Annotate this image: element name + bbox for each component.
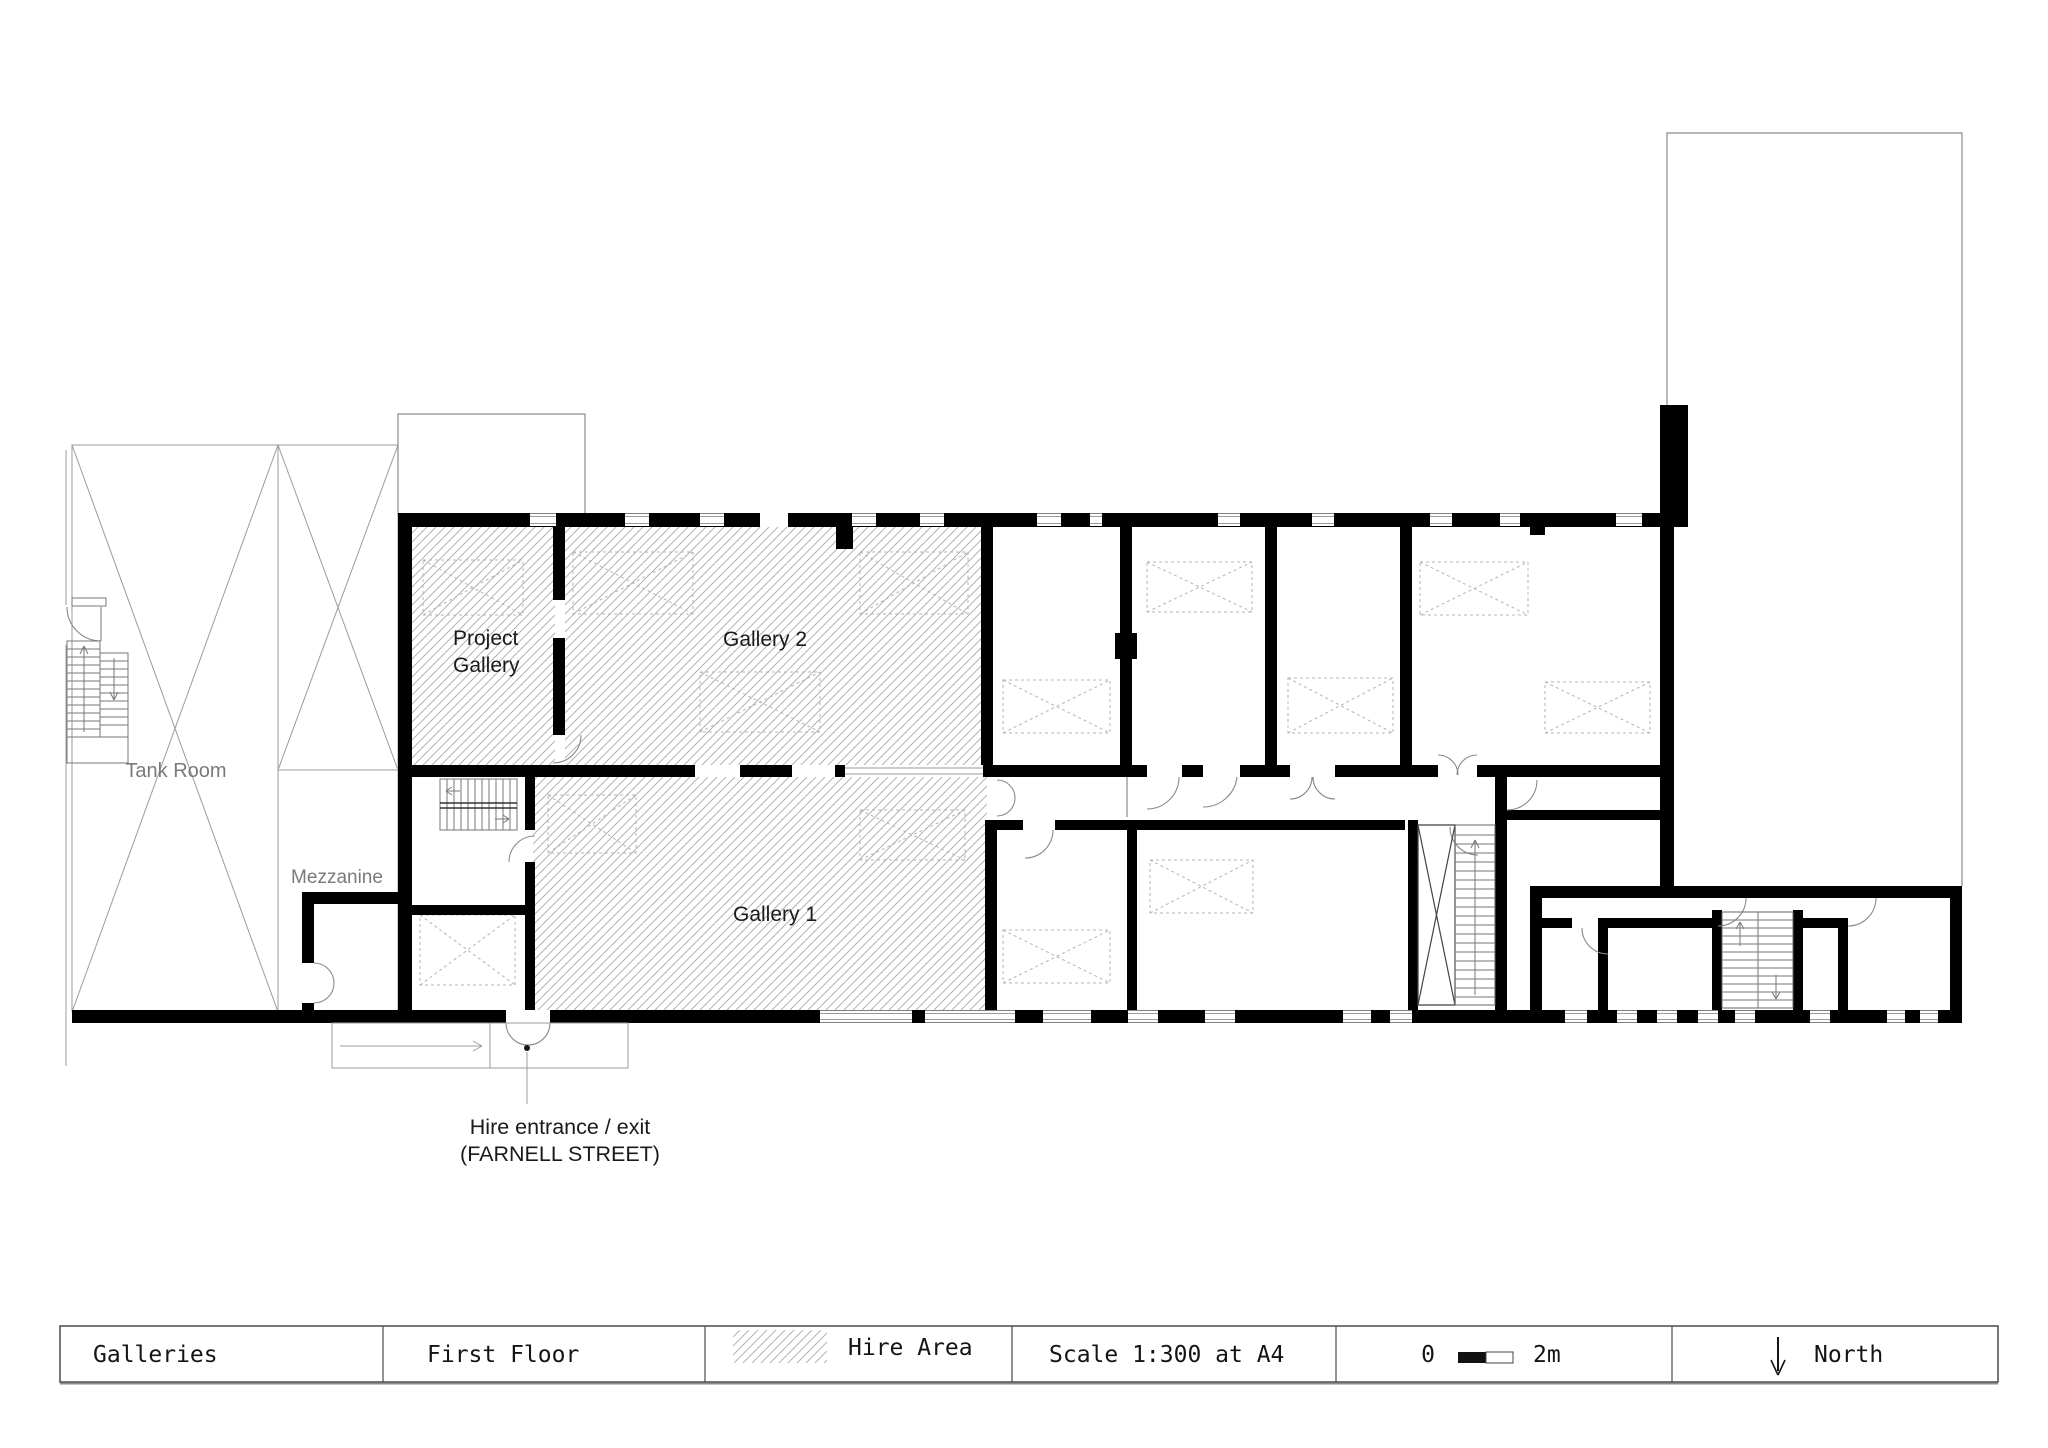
internal-glazing xyxy=(845,765,983,777)
entrance-annotation-line2: (FARNELL STREET) xyxy=(460,1142,660,1166)
mezzanine-label: Mezzanine xyxy=(291,867,383,888)
legend-hire-area-label: Hire Area xyxy=(848,1335,973,1361)
scale-bar-zero: 0 xyxy=(1421,1342,1435,1368)
tank-room-label: Tank Room xyxy=(125,760,226,782)
legend-floor-name: First Floor xyxy=(427,1342,579,1368)
scale-bar-max: 2m xyxy=(1533,1342,1561,1368)
project-gallery-label-line1: Project xyxy=(453,627,519,650)
legend-bar: Galleries First Floor Hire Area Scale 1:… xyxy=(60,1326,1998,1384)
gallery-2-label: Gallery 2 xyxy=(723,628,807,651)
hire-area-swatch-icon xyxy=(733,1330,827,1363)
legend-north-label: North xyxy=(1814,1342,1883,1368)
tank-room-stair xyxy=(67,598,128,763)
roof-outline-northwest xyxy=(398,414,585,514)
wall-opening xyxy=(760,513,788,527)
tank-room-outline xyxy=(66,445,398,1066)
entrance-leader xyxy=(524,1045,530,1104)
legend-sheet-name: Galleries xyxy=(93,1342,218,1368)
roof-outline-northeast xyxy=(1667,133,1962,886)
exterior-ramp xyxy=(332,1023,628,1068)
gallery-stair xyxy=(440,779,517,830)
entrance-annotation-line1: Hire entrance / exit xyxy=(470,1115,650,1139)
annex-stair xyxy=(1722,912,1793,1008)
floor-plan-sheet: Tank Room Mezzanine Project Gallery Gall… xyxy=(0,0,2048,1448)
project-gallery-label-line2: Gallery xyxy=(453,654,520,677)
legend-scale-label: Scale 1:300 at A4 xyxy=(1049,1342,1284,1368)
lift-and-stair xyxy=(1418,825,1495,1005)
gallery-1-label: Gallery 1 xyxy=(733,903,817,926)
